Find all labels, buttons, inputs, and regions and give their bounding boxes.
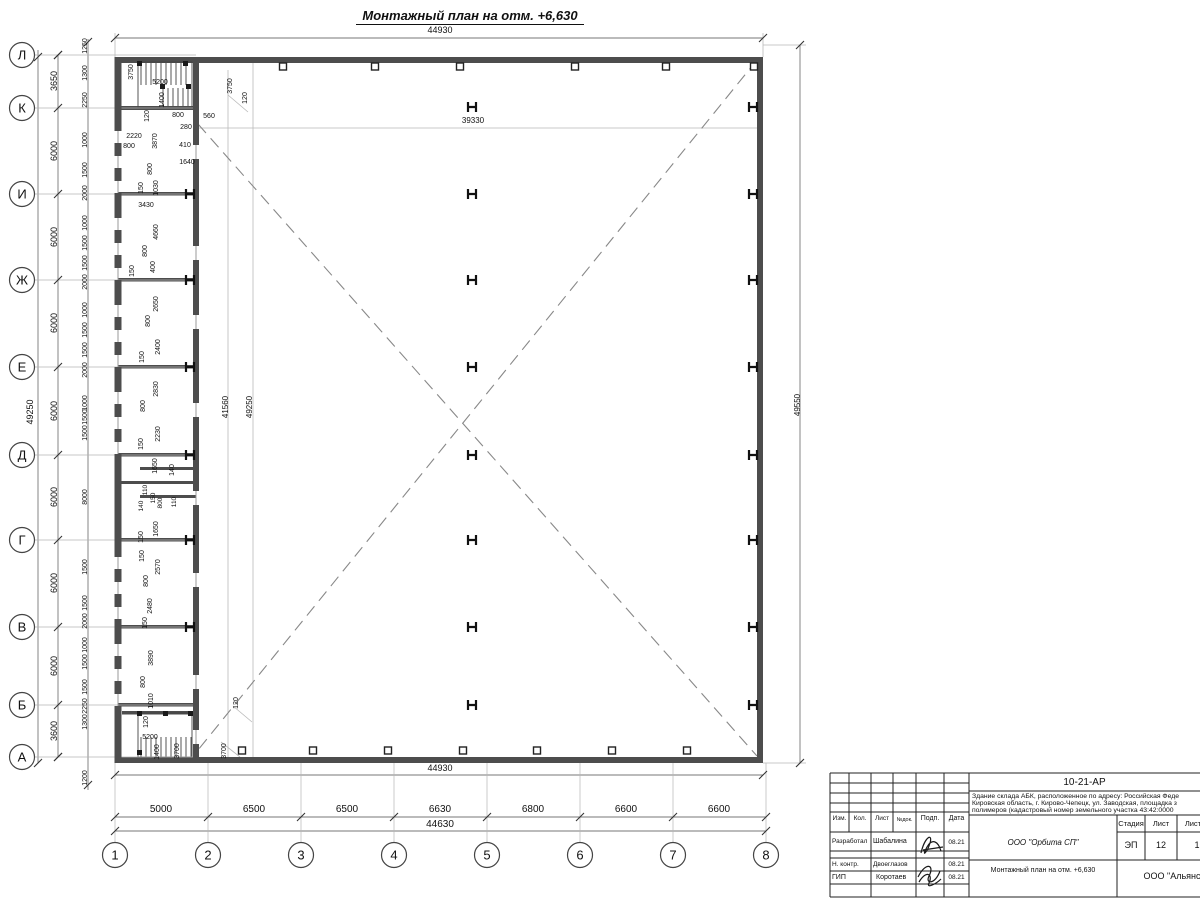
dim-label: 800 [140, 400, 147, 412]
column-symbol [749, 622, 757, 632]
axis-col-label: 6 [576, 848, 583, 863]
axis-row-label: Б [18, 698, 27, 713]
dim-label: 6630 [429, 804, 452, 815]
column-symbol [468, 362, 476, 372]
dim-label: 6600 [615, 804, 638, 815]
dim-label: 3750 [128, 64, 135, 80]
dim-label: 5200 [142, 734, 158, 741]
dim-label: 2400 [155, 339, 162, 355]
wall-pier [193, 159, 199, 246]
dim-label: 6000 [49, 141, 59, 161]
dim-label: 44630 [426, 819, 454, 830]
dim-label: 140 [138, 500, 145, 511]
dim-label: 1500 [82, 679, 89, 695]
column-symbol [186, 189, 194, 199]
dim-label: 1400 [154, 744, 161, 760]
dimension-labels: 4493039330415604925049550492504493044630… [25, 25, 802, 830]
dim-label: 2650 [153, 296, 160, 312]
axis-col-label: 2 [204, 848, 211, 863]
dim-label: 560 [203, 113, 215, 120]
dim-label: 2480 [147, 598, 154, 614]
dim-label: 1650 [152, 458, 159, 474]
column-symbol [186, 362, 194, 372]
dim-label: 2230 [155, 426, 162, 442]
tb-col-ndoc: №док. [893, 817, 916, 823]
dim-label: 3430 [138, 202, 154, 209]
dim-label: 800 [142, 245, 149, 257]
dim-label: 150 [138, 182, 145, 194]
column-marker [457, 63, 464, 70]
tb-date-2: 08.21 [944, 861, 969, 868]
axis-row-label: Л [18, 48, 27, 63]
wall-pier [115, 280, 122, 305]
dim-label: 5000 [150, 804, 173, 815]
dim-label: 800 [147, 163, 154, 175]
dim-label: 1000 [82, 215, 89, 231]
dim-label: 110 [171, 496, 178, 507]
axis-row-label: Д [18, 448, 27, 463]
dim-label: 2000 [82, 185, 89, 201]
dim-label: 6000 [49, 656, 59, 676]
dim-label: 1300 [82, 714, 89, 730]
axis-row-label: Ж [16, 273, 28, 288]
column-marker [385, 747, 392, 754]
dim-label: 2570 [155, 559, 162, 575]
dim-label: 1500 [82, 235, 89, 251]
tb-role-gip: ГИП [832, 874, 846, 882]
dim-label: 6000 [49, 313, 59, 333]
dim-label: 1500 [82, 425, 89, 441]
dim-label: 1500 [82, 654, 89, 670]
dim-label: 39330 [462, 116, 485, 125]
dim-label: 120 [143, 716, 150, 728]
tb-sheet-value: 12 [1145, 841, 1177, 851]
column-symbol [468, 700, 476, 710]
tb-col-data: Дата [944, 815, 969, 823]
dim-label: 400 [150, 261, 157, 273]
axis-row-label: Е [18, 360, 27, 375]
wall-pier [115, 168, 122, 181]
tb-sheets-value: 1 [1177, 841, 1200, 851]
tb-date-1: 08.21 [944, 839, 969, 846]
dim-label: 2220 [126, 133, 142, 140]
wall-pier [115, 255, 122, 268]
wall-pier [115, 681, 122, 694]
dim-label: 2000 [82, 613, 89, 629]
column-marker [572, 63, 579, 70]
tb-col-izm: Изм. [830, 815, 849, 822]
dim-label: 800 [123, 143, 135, 150]
wall-column-markers [239, 63, 758, 754]
dim-label: 6000 [49, 227, 59, 247]
signature-2 [918, 866, 941, 885]
dim-label: 800 [157, 497, 164, 508]
axis-row-label: В [18, 620, 27, 635]
dim-label: 4660 [153, 224, 160, 240]
wall-pier [115, 230, 122, 243]
wall-pier [115, 57, 122, 131]
dim-label: 1500 [82, 162, 89, 178]
wall-pier [115, 404, 122, 417]
dim-label: 6500 [336, 804, 359, 815]
axis-col-label: 1 [111, 848, 118, 863]
wall-pier [115, 317, 122, 330]
wall-pier [115, 193, 122, 218]
dim-label: 1500 [82, 559, 89, 575]
dim-label: 49550 [793, 393, 802, 416]
dim-label: 1030 [153, 180, 160, 196]
dim-label: 3600 [49, 721, 59, 741]
wall-pier [193, 260, 199, 315]
tb-role-developer: Разработал [832, 838, 867, 845]
dim-label: 1500 [82, 595, 89, 611]
column-symbol [749, 362, 757, 372]
column-symbol [749, 700, 757, 710]
column-symbol [749, 102, 757, 112]
wall-pier [115, 619, 122, 644]
tb-firm: ООО "Альянс [1117, 872, 1200, 882]
dim-label: 150 [150, 492, 157, 503]
dim-label: 3700 [174, 743, 181, 759]
wall-pier [193, 744, 199, 763]
dim-label: 150 [138, 531, 145, 543]
column-symbol [749, 450, 757, 460]
tb-col-podp: Подп. [916, 815, 944, 823]
dim-label: 44930 [427, 763, 452, 773]
column-symbol [468, 450, 476, 460]
column-marker [310, 747, 317, 754]
extension-lines [115, 33, 806, 763]
column-marker [372, 63, 379, 70]
wall-pier [115, 143, 122, 156]
dim-label: 8000 [82, 489, 89, 505]
dim-label: 1000 [82, 395, 89, 411]
dim-label: 2250 [82, 698, 89, 714]
tb-date-3: 08.21 [944, 874, 969, 881]
axis-col-label: 3 [297, 848, 304, 863]
column-symbol [186, 275, 194, 285]
wall-pier [193, 57, 199, 145]
tb-description-line3: полимеров (кадастровый номер земельного … [972, 807, 1174, 814]
tb-role-ncontrol: Н. контр. [832, 861, 859, 868]
bracing-diagonals [198, 60, 757, 756]
column-symbol [186, 450, 194, 460]
wall-pier [115, 594, 122, 607]
dim-label: 44930 [427, 25, 452, 35]
tb-stage-value: ЭП [1117, 841, 1145, 851]
dim-label: 150 [139, 351, 146, 363]
column-marker [663, 63, 670, 70]
column-marker [684, 747, 691, 754]
axis-grid: ЛКИЖЕДГВБА12345678 [10, 43, 779, 868]
dim-label: 120 [144, 110, 151, 122]
column-symbol [186, 535, 194, 545]
tb-name-developer: Шабалина [873, 838, 907, 846]
wall-pier [115, 342, 122, 355]
dim-label: 800 [140, 676, 147, 688]
wall-pier [193, 689, 199, 730]
dim-label: 1650 [153, 521, 160, 537]
dim-label: 1500 [82, 322, 89, 338]
dim-label: 3700 [221, 743, 228, 759]
dim-label: 3750 [227, 78, 234, 94]
dim-label: 1500 [82, 255, 89, 271]
dim-label: 3650 [49, 71, 59, 91]
column-marker [751, 63, 758, 70]
wall-pier [115, 454, 122, 557]
wall-pier [115, 569, 122, 582]
dim-label: 3870 [152, 133, 159, 149]
column-marker [460, 747, 467, 754]
dim-label: 1000 [82, 302, 89, 318]
dim-label: 5200 [152, 79, 168, 86]
axis-col-label: 5 [483, 848, 490, 863]
signatures [918, 837, 943, 885]
column-marker [534, 747, 541, 754]
dim-label: 6000 [49, 401, 59, 421]
dim-label: 2250 [82, 92, 89, 108]
column-symbol [468, 275, 476, 285]
dim-label: 140 [169, 464, 176, 476]
axis-col-label: 8 [762, 848, 769, 863]
dim-label: 800 [143, 575, 150, 587]
dim-label: 3890 [148, 650, 155, 666]
tb-doc-code: 10-21-АР [969, 777, 1200, 788]
tb-sheets-header: Листов [1177, 820, 1200, 828]
column-symbol [468, 535, 476, 545]
dim-label: 49250 [245, 395, 254, 418]
column-symbol [749, 275, 757, 285]
column-marker [609, 747, 616, 754]
dim-label: 1300 [82, 65, 89, 81]
dim-label: 410 [179, 142, 191, 149]
dim-label: 2000 [82, 362, 89, 378]
wall-pier [115, 367, 122, 392]
axis-row-label: Г [18, 533, 25, 548]
tb-org: ООО "Орбита СП" [969, 839, 1117, 848]
tb-col-list: Лист [871, 815, 893, 822]
dim-label: 1000 [82, 132, 89, 148]
column-marker [239, 747, 246, 754]
tb-stage-header: Стадия [1117, 820, 1145, 828]
wall-pier [115, 656, 122, 669]
dim-label: 1200 [82, 770, 89, 786]
axis-row-label: И [17, 187, 26, 202]
column-symbol [186, 622, 194, 632]
column-symbol [468, 102, 476, 112]
dim-label: 1000 [82, 637, 89, 653]
dim-label: 280 [180, 124, 192, 131]
dim-label: 6600 [708, 804, 731, 815]
dim-label: 1250 [82, 38, 89, 54]
dim-label: 6500 [243, 804, 266, 815]
dim-label: 150 [142, 617, 149, 629]
axis-col-label: 4 [390, 848, 397, 863]
axis-row-label: К [18, 101, 26, 116]
dim-label: 150 [138, 438, 145, 450]
dim-label: 41560 [221, 395, 230, 418]
axis-row-label: А [18, 750, 27, 765]
dim-label: 800 [172, 112, 184, 119]
dim-label: 6000 [49, 573, 59, 593]
column-symbol [468, 189, 476, 199]
dim-label: 1500 [82, 342, 89, 358]
dim-label: 1640 [179, 159, 195, 166]
dim-label: 49250 [25, 399, 35, 424]
column-symbol [468, 622, 476, 632]
dim-label: 2830 [153, 381, 160, 397]
wall-pier [115, 429, 122, 442]
dim-label: 150 [129, 265, 136, 277]
tb-name-gip: Коротаев [876, 874, 906, 882]
dim-label: 1500 [82, 409, 89, 425]
column-marker [280, 63, 287, 70]
dimension-ticks [34, 34, 804, 835]
steel-columns [186, 102, 757, 710]
tb-sheet-header: Лист [1145, 820, 1177, 828]
dim-label: 2000 [82, 274, 89, 290]
dim-label: 1400 [159, 92, 166, 108]
wall-pier [115, 706, 122, 763]
dim-label: 6800 [522, 804, 545, 815]
axis-col-label: 7 [669, 848, 676, 863]
dim-label: 1010 [148, 693, 155, 709]
walls [115, 57, 763, 763]
dim-label: 110 [142, 484, 149, 495]
plan-canvas: ЛКИЖЕДГВБА12345678 449303933041560492504… [0, 0, 1200, 900]
dim-label: 120 [233, 697, 240, 709]
drawing-sheet: Монтажный план на отм. +6,630 [0, 0, 1200, 900]
dim-label: 150 [139, 550, 146, 562]
tb-col-kol: Кол. [849, 815, 871, 822]
dim-label: 120 [242, 92, 249, 104]
tb-name-ncontrol: Двоеглазов [873, 861, 908, 868]
tb-sheet-title: Монтажный план на отм. +6,630 [969, 867, 1117, 875]
column-symbol [749, 189, 757, 199]
column-symbol [749, 535, 757, 545]
dim-label: 6000 [49, 487, 59, 507]
dim-label: 800 [145, 315, 152, 327]
